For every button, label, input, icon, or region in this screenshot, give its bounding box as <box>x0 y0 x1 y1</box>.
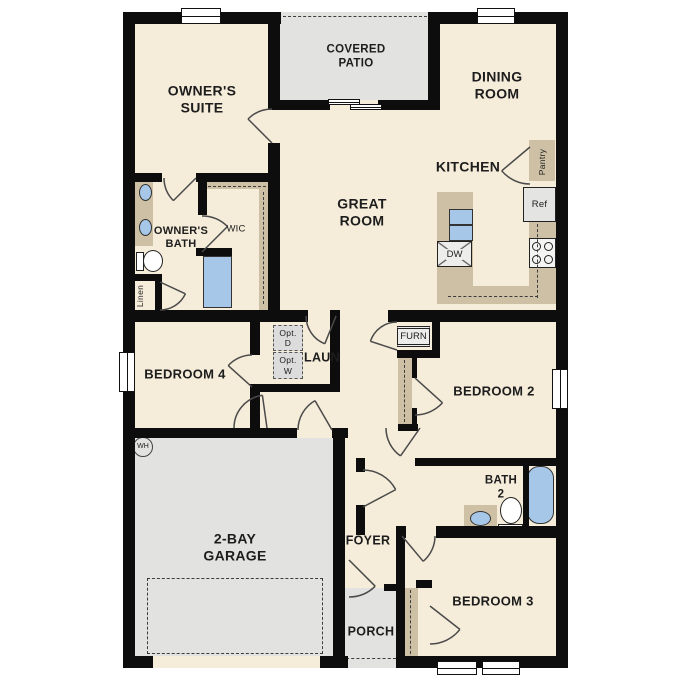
garage-label: 2-BAY GARAGE <box>203 530 266 563</box>
door-swing <box>370 322 397 350</box>
bedroom3-label: BEDROOM 3 <box>452 593 533 608</box>
kitchen-label: KITCHEN <box>436 159 500 176</box>
door-swing <box>363 470 396 507</box>
pantry-label: Pantry <box>537 149 547 175</box>
door-swing <box>228 355 252 387</box>
owners-suite-label: OWNER'S SUITE <box>168 82 236 115</box>
foyer-label: FOYER <box>346 534 391 549</box>
owners-bath-label: OWNER'S BATH <box>154 225 208 251</box>
door-swing <box>306 316 336 344</box>
door-swing <box>248 109 272 143</box>
wic-label: WIC <box>226 223 245 234</box>
door-swing <box>298 401 332 430</box>
door-swing <box>234 395 267 428</box>
bedroom4-label: BEDROOM 4 <box>144 366 225 381</box>
door-swings <box>0 0 687 687</box>
door-swing <box>164 178 196 201</box>
covered-patio-label: COVERED PATIO <box>327 43 386 70</box>
bedroom2-label: BEDROOM 2 <box>453 383 534 398</box>
dining-room-label: DINING ROOM <box>472 68 523 101</box>
floor-plan: Ref DW FURN WH Opt. D Opt. W OWNER'S SUI… <box>0 0 687 687</box>
door-swing <box>502 147 530 184</box>
bath2-label: BATH 2 <box>485 474 517 501</box>
great-room-label: GREAT ROOM <box>337 195 386 228</box>
door-swing <box>415 378 443 415</box>
door-swing <box>349 560 375 597</box>
door-swing <box>386 428 420 456</box>
laundry-label: LAUN <box>304 351 340 366</box>
door-swing <box>160 282 185 310</box>
door-swing <box>430 606 460 644</box>
linen-label: Linen <box>135 285 145 307</box>
porch-label: PORCH <box>348 625 395 640</box>
door-swing <box>402 536 435 561</box>
